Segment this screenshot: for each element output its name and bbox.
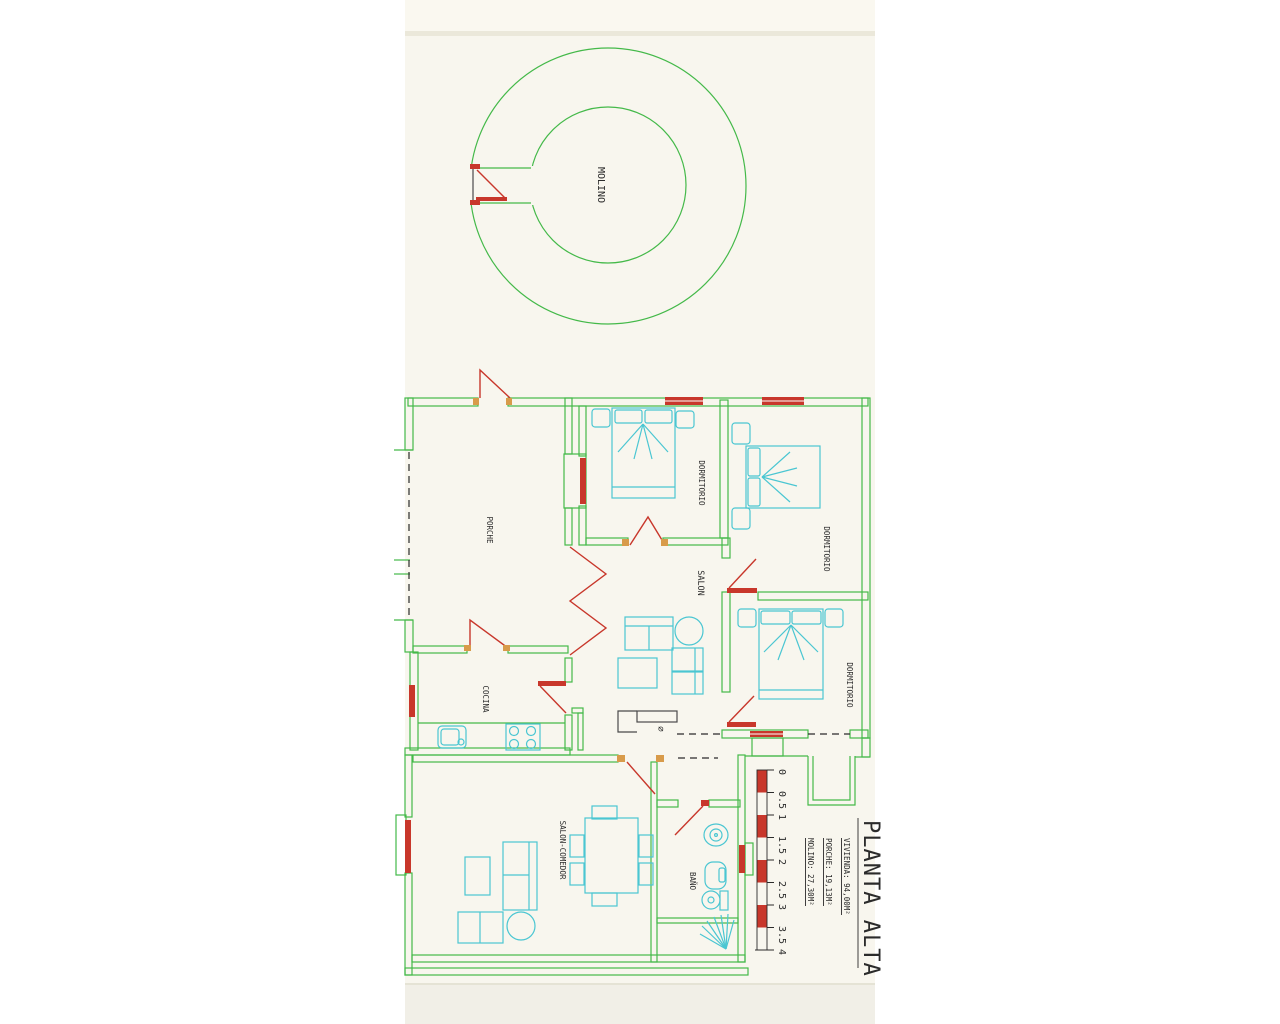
room-label-salon-comedor: SALON-COMEDOR [558, 821, 567, 880]
scale-tick-6: 3 [776, 904, 787, 910]
scale-tick-4: 2 [776, 859, 787, 865]
area-porche: PORCHE: 19,13M² [824, 838, 833, 906]
floor-plan-drawing: MOLINO [0, 0, 1280, 1024]
room-label-cocina: COCINA [481, 685, 490, 713]
drawing-title: PLANTA ALTA [858, 820, 883, 977]
room-label-dormitorio-3: DORMITORIO [845, 662, 854, 708]
scale-tick-1: 0.5 [776, 791, 787, 809]
chimney-symbol: ⌀ [655, 726, 665, 732]
scale-tick-5: 2.5 [776, 881, 787, 899]
window-bano [739, 845, 745, 873]
room-label-dormitorio-2: DORMITORIO [822, 526, 831, 572]
area-molino: MOLINO: 27,30M² [806, 838, 815, 906]
scale-tick-3: 1.5 [776, 836, 787, 854]
scale-tick-7: 3.5 [776, 926, 787, 944]
room-label-molino: MOLINO [595, 167, 606, 203]
window-cocina [409, 685, 415, 717]
window-salon-comedor [405, 820, 411, 873]
area-vivienda: VIVIENDA: 94,00M² [842, 838, 851, 915]
window-dorm1 [580, 458, 586, 504]
room-label-porche: PORCHE [485, 516, 494, 544]
room-label-salon: SALON [695, 570, 705, 596]
window-dorm3 [750, 731, 783, 737]
scale-tick-0: 0 [776, 769, 787, 775]
room-label-bano: BAÑO [688, 872, 697, 891]
window-top-2 [762, 397, 804, 405]
scale-tick-8: 4 [776, 949, 787, 955]
sheet-background [405, 0, 875, 1024]
room-label-dormitorio-1: DORMITORIO [697, 460, 706, 506]
scale-tick-2: 1 [776, 814, 787, 820]
window-top-1 [665, 397, 703, 405]
screenshot-root: MOLINO [0, 0, 1280, 1024]
